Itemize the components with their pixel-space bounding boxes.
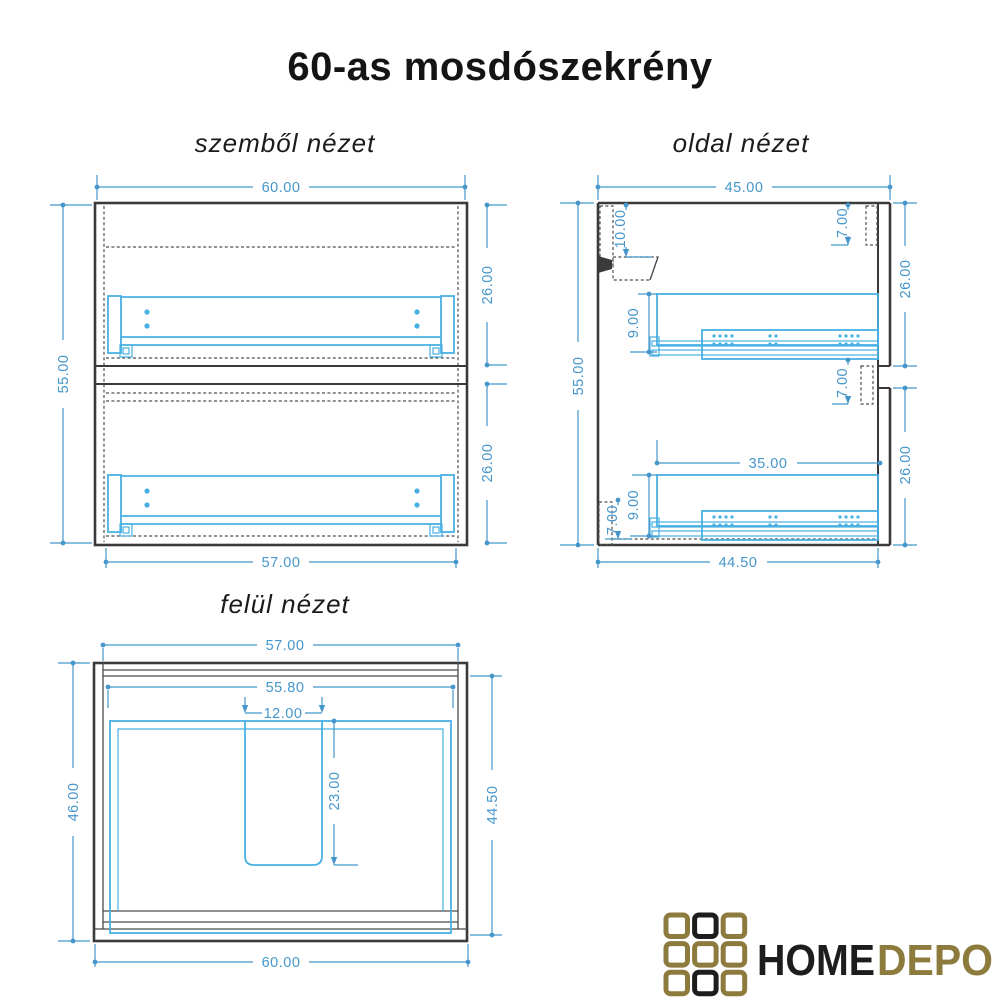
dim-top-depth-right: 44.50	[470, 676, 502, 935]
front-view: szemből nézet 60.00 55.00 26.00	[50, 128, 507, 571]
dim-side-depth-top: 45.00	[598, 175, 890, 200]
dim-label: 9.00	[626, 308, 642, 338]
dim-label: 60.00	[262, 955, 301, 971]
logo-square-gold	[723, 944, 745, 966]
dim-label: 7.00	[835, 368, 851, 398]
logo-square-gold	[723, 915, 745, 937]
top-view-cabinet-outline	[94, 663, 467, 941]
logo-square-gold	[666, 915, 688, 937]
dim-front-drawer-lower: 26.00	[480, 384, 507, 543]
dim-label: 45.00	[725, 180, 764, 196]
dim-label: 44.50	[719, 555, 758, 571]
logo-square-gold	[666, 972, 688, 994]
dim-front-drawer-upper: 26.00	[480, 205, 507, 365]
homedepo-logo-grid	[666, 915, 745, 994]
dim-side-gap-mid: 7.00	[832, 360, 851, 404]
side-view-drawer-rails	[650, 294, 878, 540]
logo-word-depo: DEPO	[877, 936, 993, 985]
dim-top-depth-left: 46.00	[58, 663, 90, 941]
dim-label: 57.00	[266, 638, 305, 654]
dim-side-depth-bottom: 44.50	[598, 548, 878, 571]
dim-label: 12.00	[264, 706, 303, 722]
dim-label: 9.00	[626, 490, 642, 520]
front-view-label: szemből nézet	[195, 128, 376, 158]
dim-label: 55.80	[266, 680, 305, 696]
page-title: 60-as mosdószekrény	[287, 45, 713, 89]
dim-label: 35.00	[749, 456, 788, 472]
dim-side-drawer-lower: 26.00	[893, 388, 917, 545]
dim-label: 57.00	[262, 555, 301, 571]
dim-label: 10.00	[613, 210, 629, 249]
dim-label: 26.00	[898, 446, 914, 485]
logo-square-gold	[666, 944, 688, 966]
logo-square-gold	[695, 944, 717, 966]
logo-square-gold	[723, 972, 745, 994]
top-view-basin-outline	[110, 721, 451, 933]
logo-word-home: HOME	[757, 936, 875, 985]
dim-label: 55.00	[56, 355, 72, 394]
side-view-label: oldal nézet	[673, 128, 811, 158]
dim-label: 23.00	[327, 772, 343, 811]
dim-label: 7.00	[835, 208, 851, 238]
dim-label: 44.50	[485, 786, 501, 825]
siphon-cutout	[245, 721, 322, 865]
dim-label: 46.00	[66, 783, 82, 822]
dim-top-cutout-depth: 23.00	[327, 721, 358, 865]
front-view-cabinet-outline	[95, 203, 467, 545]
technical-drawing-page: 60-as mosdószekrény szemből nézet 60.00 …	[0, 0, 1000, 1000]
front-view-drawer-slides	[108, 296, 454, 536]
dim-side-drawer-upper: 26.00	[893, 203, 917, 366]
dim-top-cutout-width: 12.00	[242, 697, 325, 722]
logo-square-black	[695, 915, 717, 937]
wall-bracket	[598, 256, 612, 273]
homedepo-logo: HOME DEPO	[666, 915, 993, 994]
dim-front-height-left: 55.00	[50, 205, 92, 543]
dim-label: 26.00	[480, 444, 496, 483]
dim-label: 26.00	[480, 266, 496, 305]
dim-label: 55.00	[571, 357, 587, 396]
dim-label: 26.00	[898, 260, 914, 299]
dim-side-rail-length: 35.00	[657, 440, 880, 472]
dim-side-hanger-offset: 10.00	[613, 205, 652, 257]
top-view-label: felül nézet	[220, 589, 350, 619]
dim-label: 60.00	[262, 180, 301, 196]
logo-square-black	[695, 972, 717, 994]
dim-top-width-top: 57.00	[103, 638, 458, 661]
side-view: oldal nézet 45.00 10.00	[560, 128, 917, 571]
dim-label: 7.00	[605, 505, 621, 535]
dim-front-width-bottom: 57.00	[106, 548, 456, 571]
dim-front-width-top: 60.00	[97, 175, 465, 200]
dim-top-width-inner: 55.80	[108, 680, 453, 708]
drawing-canvas: 60-as mosdószekrény szemből nézet 60.00 …	[0, 0, 1000, 1000]
top-view: felül nézet 57.00 55.80 12.00	[58, 589, 502, 971]
dim-side-gap-top: 7.00	[831, 205, 851, 245]
dim-top-width-bottom: 60.00	[95, 944, 468, 971]
dim-side-height-left: 55.00	[560, 203, 594, 545]
